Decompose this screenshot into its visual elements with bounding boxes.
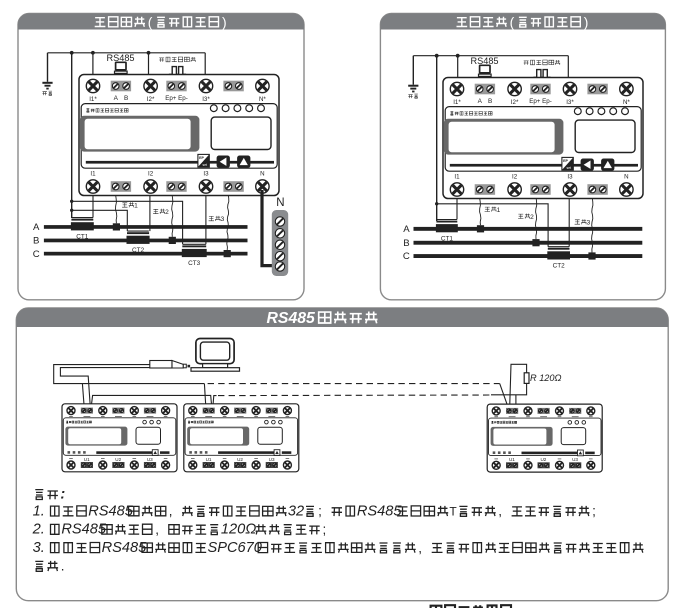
svg-text:N*: N* — [259, 96, 266, 103]
svg-text:1: 1 — [497, 207, 501, 214]
svg-text:N*: N* — [623, 99, 630, 106]
svg-text:U1: U1 — [509, 457, 515, 462]
svg-text:(: ( — [148, 14, 153, 30]
svg-text:C: C — [33, 249, 40, 260]
svg-text:;: ; — [318, 504, 322, 519]
svg-text:RS485: RS485 — [106, 53, 134, 63]
svg-text:3.: 3. — [33, 540, 45, 556]
svg-text:I3*: I3* — [566, 99, 574, 106]
svg-text:CT1: CT1 — [441, 235, 454, 242]
svg-text:RS485: RS485 — [61, 522, 107, 538]
svg-text:I1*: I1* — [89, 96, 97, 103]
svg-text:A: A — [403, 224, 410, 235]
svg-text:I3: I3 — [203, 171, 209, 178]
svg-text:.: . — [61, 559, 65, 574]
svg-text:CT1: CT1 — [76, 233, 89, 240]
svg-text:U3: U3 — [269, 457, 275, 462]
svg-text:,: , — [498, 504, 502, 519]
svg-text:I2: I2 — [148, 171, 154, 178]
svg-text:A: A — [114, 95, 119, 102]
svg-text:3: 3 — [587, 220, 591, 227]
svg-text:RS485: RS485 — [470, 56, 498, 66]
svg-text:2: 2 — [530, 214, 534, 221]
svg-text:N: N — [260, 171, 264, 178]
svg-text:I2: I2 — [512, 174, 518, 181]
svg-text:EP: EP — [199, 156, 204, 160]
svg-text:U1: U1 — [84, 457, 90, 462]
svg-text:CT3: CT3 — [188, 260, 201, 267]
svg-text:(: ( — [510, 14, 515, 30]
svg-text:2.: 2. — [32, 522, 45, 538]
svg-text:set: set — [203, 163, 208, 167]
svg-text:set: set — [567, 166, 572, 170]
svg-text:U1: U1 — [206, 457, 212, 462]
svg-text:CT2: CT2 — [553, 263, 566, 270]
svg-text:32: 32 — [288, 503, 304, 519]
svg-text:I1: I1 — [90, 171, 96, 178]
svg-text:A: A — [33, 222, 40, 233]
svg-text:RS485: RS485 — [102, 540, 148, 556]
svg-text:RS485: RS485 — [267, 310, 316, 327]
svg-text:I3*: I3* — [202, 96, 210, 103]
svg-text::: : — [60, 486, 65, 502]
svg-text:B: B — [488, 98, 492, 105]
svg-text:I2*: I2* — [511, 99, 519, 106]
svg-text:CT2: CT2 — [132, 247, 145, 254]
svg-text:B: B — [33, 236, 39, 247]
svg-text:B: B — [124, 95, 128, 102]
svg-text:,: , — [169, 504, 173, 519]
svg-text:I3: I3 — [567, 174, 573, 181]
svg-text:3: 3 — [221, 216, 225, 223]
svg-text:1.: 1. — [33, 503, 45, 519]
svg-text:SPC670: SPC670 — [208, 540, 262, 556]
svg-text:C: C — [403, 251, 410, 262]
svg-text:U3: U3 — [147, 457, 153, 462]
svg-text:I1*: I1* — [453, 99, 461, 106]
svg-text:2: 2 — [165, 209, 169, 216]
svg-text:U2: U2 — [540, 457, 546, 462]
svg-text:): ) — [584, 14, 589, 30]
svg-text:120Ω: 120Ω — [221, 522, 256, 538]
svg-text:;: ; — [592, 504, 596, 519]
svg-text:,: , — [155, 522, 159, 537]
svg-text:B: B — [403, 238, 409, 249]
svg-text:A: A — [478, 98, 483, 105]
svg-text:U2: U2 — [115, 457, 121, 462]
svg-text:I2*: I2* — [147, 96, 155, 103]
svg-text:RS485: RS485 — [88, 503, 134, 519]
svg-text:;: ; — [323, 522, 327, 537]
svg-text:EP: EP — [563, 159, 568, 163]
svg-text:N: N — [276, 197, 284, 209]
svg-text:Ep+ Ep-: Ep+ Ep- — [165, 95, 188, 102]
svg-text:N: N — [624, 174, 628, 181]
svg-text:U3: U3 — [572, 457, 578, 462]
svg-text:R 120Ω: R 120Ω — [530, 373, 562, 383]
svg-text:): ) — [222, 14, 227, 30]
svg-text:RS485: RS485 — [357, 503, 403, 519]
svg-text:U2: U2 — [237, 457, 243, 462]
svg-text:I1: I1 — [454, 174, 460, 181]
svg-text:1: 1 — [134, 203, 138, 210]
svg-text:,: , — [418, 540, 422, 555]
svg-text:Ep+ Ep-: Ep+ Ep- — [529, 98, 552, 105]
svg-text:T: T — [449, 504, 457, 518]
